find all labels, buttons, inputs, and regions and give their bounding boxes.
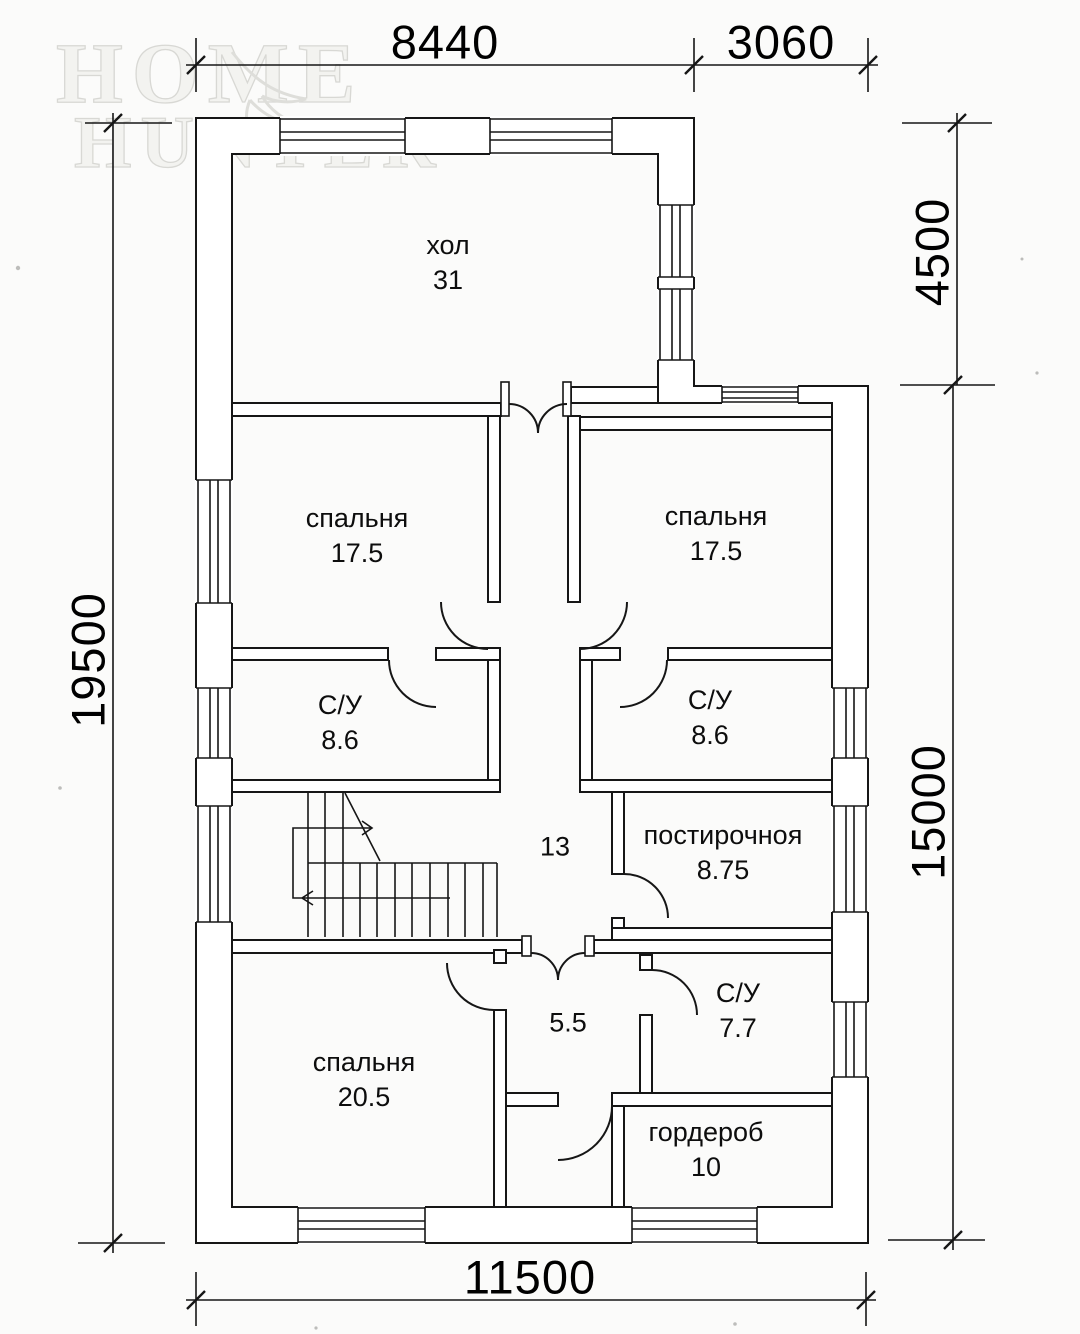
room-name: спальня xyxy=(665,499,768,534)
room-area: 7.7 xyxy=(716,1011,760,1046)
door-bathroom-bottom xyxy=(652,970,697,1015)
room-label-bedroom-top-right: спальня 17.5 xyxy=(665,499,768,569)
room-name: С/У xyxy=(716,976,760,1011)
windows xyxy=(195,116,869,1244)
window-left-3 xyxy=(195,806,233,922)
window-right-2 xyxy=(831,806,869,912)
room-label-bedroom-bottom: спальня 20.5 xyxy=(313,1045,416,1115)
door-bedroom-left xyxy=(441,602,488,649)
room-area: 10 xyxy=(649,1150,764,1185)
door-bathroom-right xyxy=(620,660,667,707)
window-left-2 xyxy=(195,688,233,758)
staircase xyxy=(293,792,497,937)
room-area: 8.6 xyxy=(318,723,362,758)
window-step-wall xyxy=(722,384,798,405)
room-name: С/У xyxy=(688,683,732,718)
room-area: 17.5 xyxy=(306,536,409,571)
window-right-1 xyxy=(831,688,869,758)
room-label-hall: хол 31 xyxy=(426,228,469,298)
room-label-laundry: постирочноя 8.75 xyxy=(644,818,803,888)
door-bathroom-left xyxy=(389,660,436,707)
room-label-bathroom-bottom: С/У 7.7 xyxy=(716,976,760,1046)
window-right-3 xyxy=(831,1002,869,1077)
room-label-bedroom-top-left: спальня 17.5 xyxy=(306,501,409,571)
room-area: 20.5 xyxy=(313,1080,416,1115)
floor-plan-page: HOME HUNTER xyxy=(0,0,1080,1334)
scan-noise xyxy=(16,258,1039,1330)
dimension-bottom: 11500 xyxy=(464,1250,596,1305)
door-hall-double xyxy=(509,404,567,433)
dimension-left: 19500 xyxy=(61,592,116,728)
window-hall-right-2 xyxy=(657,289,695,360)
dimension-right-lower: 15000 xyxy=(901,744,956,880)
room-area: 8.75 xyxy=(644,853,803,888)
room-name: С/У xyxy=(318,688,362,723)
exterior-walls xyxy=(196,118,868,1243)
door-wardrobe xyxy=(558,1106,612,1160)
window-bottom-2 xyxy=(632,1206,757,1244)
dimension-top-main: 8440 xyxy=(391,15,500,70)
room-name: спальня xyxy=(313,1045,416,1080)
room-area: 5.5 xyxy=(549,1005,587,1040)
dimension-right-upper: 4500 xyxy=(905,198,960,307)
room-name: постирочноя xyxy=(644,818,803,853)
room-name: гордероб xyxy=(649,1115,764,1150)
room-label-wardrobe: гордероб 10 xyxy=(649,1115,764,1185)
room-area: 17.5 xyxy=(665,534,768,569)
room-area: 8.6 xyxy=(688,718,732,753)
room-label-bathroom-right: С/У 8.6 xyxy=(688,683,732,753)
dimension-top-right: 3060 xyxy=(727,15,836,70)
room-area: 31 xyxy=(426,263,469,298)
window-top-2 xyxy=(490,116,612,156)
room-name: спальня xyxy=(306,501,409,536)
door-corridor-double xyxy=(531,953,585,980)
door-bedroom-right xyxy=(580,602,627,649)
door-bedroom-bottom xyxy=(447,963,494,1010)
room-label-corridor: 13 xyxy=(540,829,570,864)
window-hall-right-1 xyxy=(657,205,695,277)
room-area: 13 xyxy=(540,829,570,864)
window-left-1 xyxy=(195,480,233,603)
window-bottom-1 xyxy=(298,1206,425,1244)
room-label-hall-bottom: 5.5 xyxy=(549,1005,587,1040)
room-label-bathroom-left: С/У 8.6 xyxy=(318,688,362,758)
window-top-1 xyxy=(280,116,405,156)
room-name: хол xyxy=(426,228,469,263)
